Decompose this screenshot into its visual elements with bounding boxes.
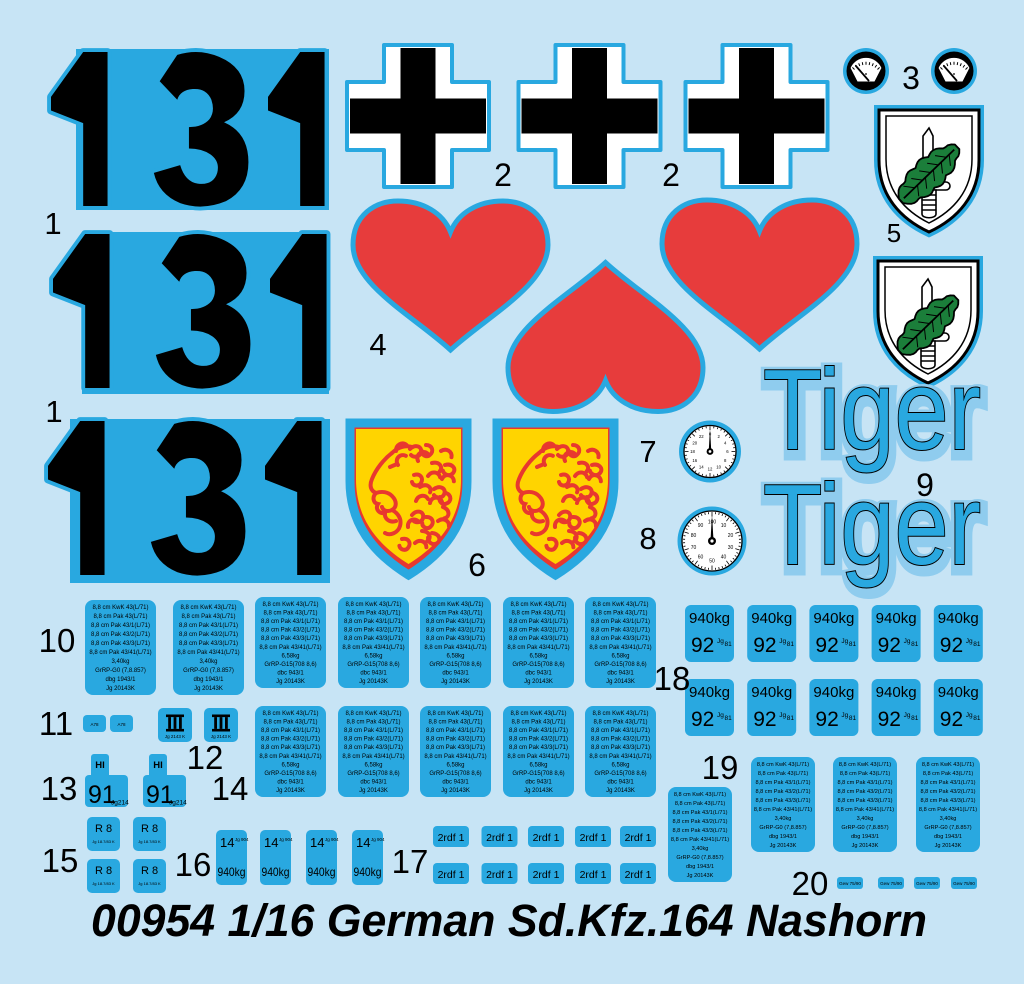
svg-text:8: 8 [639,521,656,556]
svg-text:14: 14 [212,770,249,807]
svg-text:10: 10 [39,622,76,659]
svg-text:6: 6 [468,547,486,583]
svg-text:2: 2 [494,157,512,193]
svg-text:13: 13 [41,770,78,807]
svg-text:15: 15 [42,842,79,879]
svg-text:18: 18 [654,660,691,697]
svg-text:00954 1/16 German Sd.Kfz.164 N: 00954 1/16 German Sd.Kfz.164 Nashorn [91,895,927,946]
svg-text:4: 4 [369,327,386,362]
svg-text:19: 19 [702,749,739,786]
svg-text:3: 3 [902,60,920,96]
svg-text:9: 9 [916,467,934,503]
svg-text:2: 2 [662,157,680,193]
svg-text:11: 11 [39,705,73,742]
svg-text:17: 17 [392,843,429,880]
svg-text:1: 1 [44,206,61,241]
svg-text:16: 16 [175,846,212,883]
svg-text:Tiger: Tiger [763,347,981,474]
svg-text:7: 7 [639,434,656,469]
svg-text:5: 5 [887,218,901,248]
svg-text:1: 1 [45,394,62,429]
svg-text:Tiger: Tiger [763,462,981,589]
